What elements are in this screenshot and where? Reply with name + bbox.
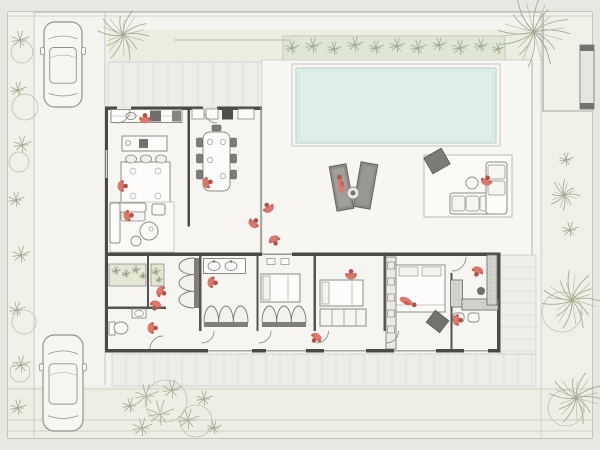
master-pillow (399, 267, 418, 276)
bed1-shelf (281, 259, 289, 265)
dining-chair (231, 170, 237, 179)
gate-post-top (580, 45, 594, 51)
master-closet (386, 257, 396, 349)
chair (141, 155, 152, 163)
chair (156, 155, 167, 163)
island-sink (139, 139, 148, 148)
dining-cabinet-dark (222, 109, 233, 120)
bed1-shelf (267, 259, 275, 265)
window-left-kitchen (106, 150, 108, 178)
faucet (230, 260, 232, 262)
outdoor-sofa-cushion (488, 165, 505, 179)
side-table-small (131, 236, 141, 246)
side-gate (580, 45, 594, 109)
wall-band-bottom-b (252, 349, 266, 353)
car-bottom (40, 335, 87, 431)
wall-band-top-b (292, 253, 500, 257)
wall-band-bottom-c (306, 349, 324, 353)
dining-cabinet-1 (192, 109, 204, 119)
wall-band-left (105, 253, 108, 353)
master-bidet (468, 313, 479, 322)
floor-plan (0, 0, 600, 450)
wall-kitchen-dining (188, 107, 191, 227)
master-vanity-l (451, 280, 463, 307)
bed2-pillow (322, 282, 329, 304)
bed2-bench (320, 309, 366, 326)
wall-band-bottom-d (366, 349, 394, 353)
bath1-vanity (204, 259, 246, 274)
bed1-pillow (263, 276, 270, 300)
dining-chair (212, 125, 221, 131)
chair (126, 155, 137, 163)
dining-cabinet-3 (238, 109, 254, 119)
master-pillow (422, 267, 441, 276)
wall-patio-hall (147, 255, 149, 308)
wall-bath-bed1 (257, 255, 259, 331)
shower-drain (477, 287, 485, 295)
wall-bed1-bed2 (314, 255, 317, 331)
dining-chair (231, 154, 237, 163)
shower-wall (487, 255, 497, 305)
wardrobe-bed1 (262, 306, 306, 327)
dining-chair (197, 170, 203, 179)
wall-band-bottom-a (105, 349, 208, 353)
kitchen-table (121, 162, 170, 205)
floor-plan-canvas (0, 0, 600, 450)
kitchen-stove (150, 111, 161, 122)
rear-deck (112, 354, 536, 386)
hall-closet (179, 258, 199, 308)
wall-band-top-a (105, 253, 262, 257)
bottom-garden-strip (8, 386, 592, 438)
armchair (152, 204, 165, 215)
wall-left-kitchen (105, 107, 108, 257)
outdoor-side-table (466, 177, 478, 189)
wardrobe-bath1 (204, 306, 248, 327)
outdoor-sofa-cushion (452, 196, 465, 211)
gate-post-bottom (580, 103, 594, 109)
wall-band-bottom-e (436, 349, 464, 353)
pool-water (296, 68, 496, 143)
faucet (213, 260, 215, 262)
kitchen-cabinet-dark (172, 111, 181, 122)
coffee-table (140, 222, 158, 240)
patio-planter-small (151, 264, 164, 286)
car-top (41, 22, 86, 107)
dining-chair (197, 138, 203, 147)
outdoor-sofa-cushion (466, 196, 479, 211)
pool-side-table-top (351, 191, 356, 196)
sofa-side (110, 203, 120, 243)
wall-hall-bath (199, 255, 202, 331)
dining-cabinet-2 (206, 109, 218, 119)
dining-chair (231, 138, 237, 147)
wc-toilet (114, 322, 128, 334)
side-deck (500, 255, 536, 354)
dining-chair (197, 154, 203, 163)
